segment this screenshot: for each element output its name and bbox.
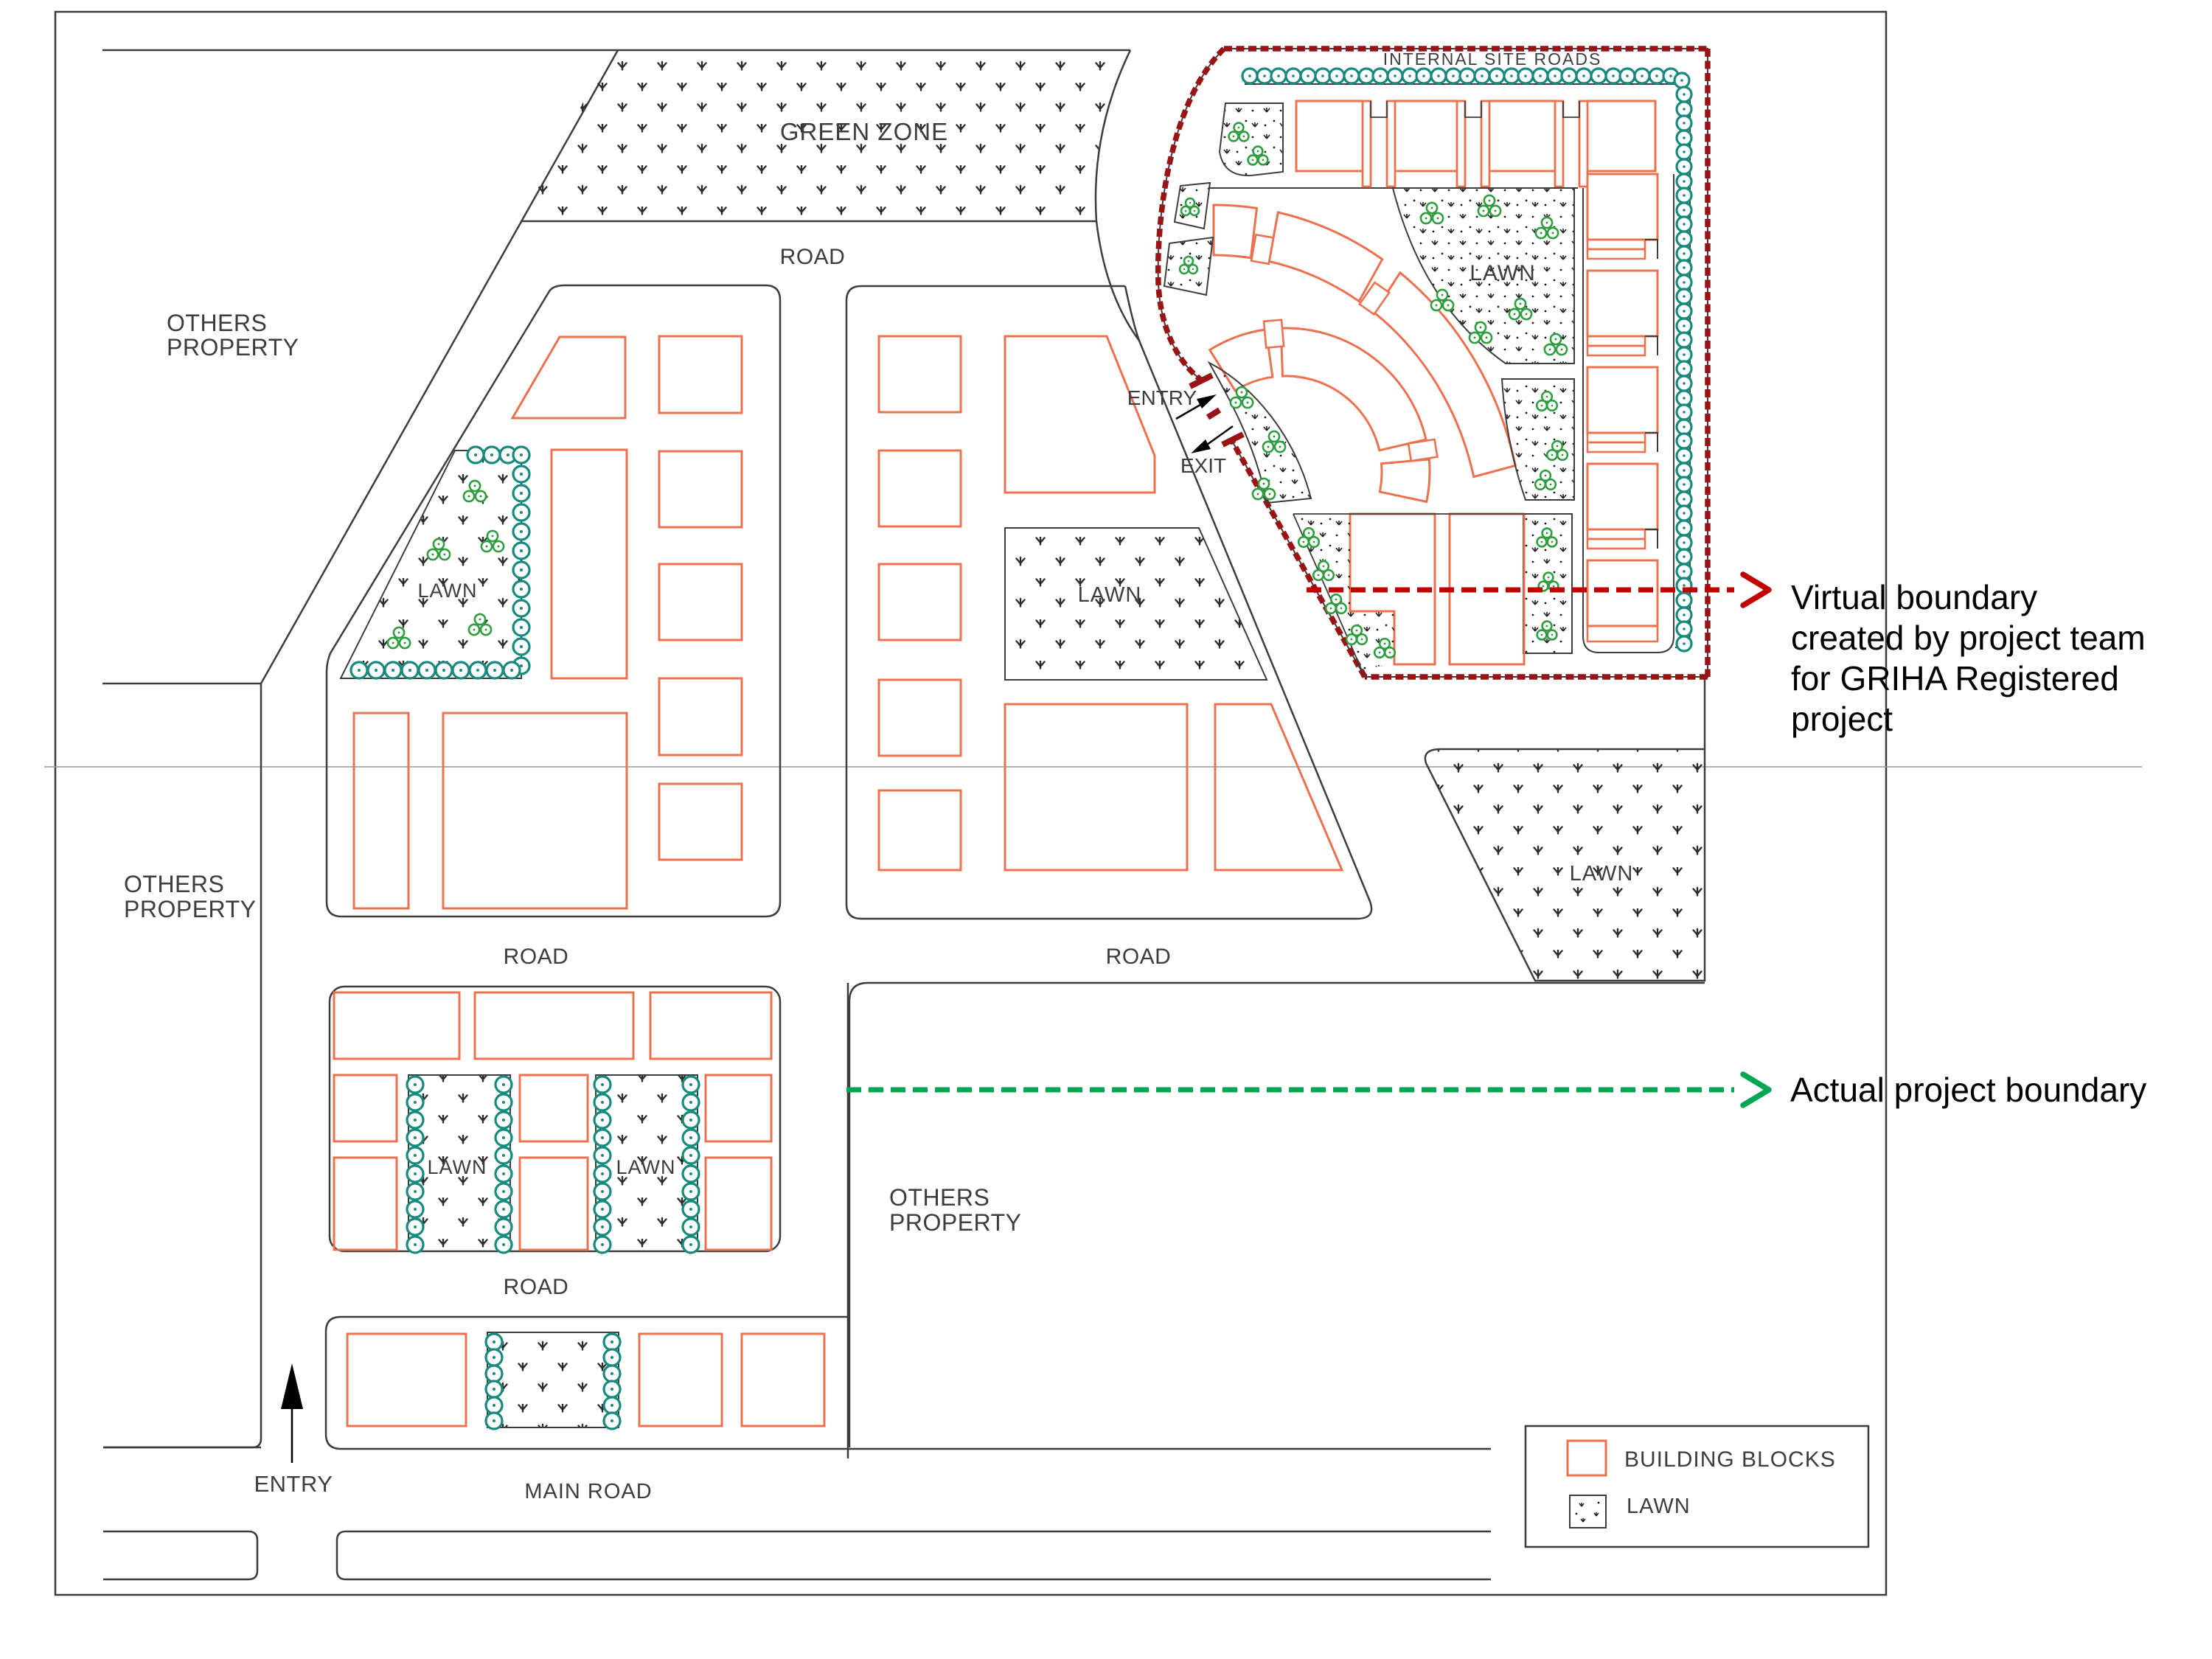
svg-text:EXIT: EXIT bbox=[1180, 454, 1226, 477]
svg-text:created by project team: created by project team bbox=[1791, 619, 2146, 657]
svg-text:Virtual boundary: Virtual boundary bbox=[1791, 578, 2037, 616]
svg-text:OTHERS: OTHERS bbox=[889, 1184, 990, 1211]
svg-text:LAWN: LAWN bbox=[616, 1156, 675, 1178]
svg-text:GREEN ZONE: GREEN ZONE bbox=[780, 118, 948, 145]
svg-text:MAIN ROAD: MAIN ROAD bbox=[524, 1480, 652, 1503]
svg-text:for GRIHA Registered: for GRIHA Registered bbox=[1791, 659, 2119, 698]
svg-text:project: project bbox=[1791, 700, 1893, 738]
svg-text:BUILDING BLOCKS: BUILDING BLOCKS bbox=[1624, 1447, 1836, 1472]
svg-text:PROPERTY: PROPERTY bbox=[889, 1209, 1021, 1236]
svg-text:ENTRY: ENTRY bbox=[254, 1471, 333, 1497]
svg-text:LAWN: LAWN bbox=[417, 580, 477, 602]
svg-text:OTHERS: OTHERS bbox=[167, 310, 267, 336]
svg-text:PROPERTY: PROPERTY bbox=[124, 896, 256, 922]
svg-text:LAWN: LAWN bbox=[1627, 1495, 1691, 1518]
svg-text:LAWN: LAWN bbox=[427, 1156, 487, 1178]
svg-text:PROPERTY: PROPERTY bbox=[167, 334, 299, 361]
svg-text:LAWN: LAWN bbox=[1078, 583, 1142, 607]
svg-text:ENTRY: ENTRY bbox=[1127, 386, 1197, 409]
svg-text:ROAD: ROAD bbox=[780, 245, 846, 269]
svg-text:Actual project boundary: Actual project boundary bbox=[1790, 1071, 2146, 1109]
svg-text:ROAD: ROAD bbox=[504, 945, 569, 969]
svg-text:ROAD: ROAD bbox=[504, 1275, 569, 1299]
svg-text:INTERNAL SITE ROADS: INTERNAL SITE ROADS bbox=[1383, 49, 1602, 69]
svg-text:LAWN: LAWN bbox=[1570, 862, 1634, 886]
svg-text:LAWN: LAWN bbox=[1470, 261, 1536, 285]
svg-text:OTHERS: OTHERS bbox=[124, 871, 224, 897]
svg-text:ROAD: ROAD bbox=[1106, 945, 1172, 969]
